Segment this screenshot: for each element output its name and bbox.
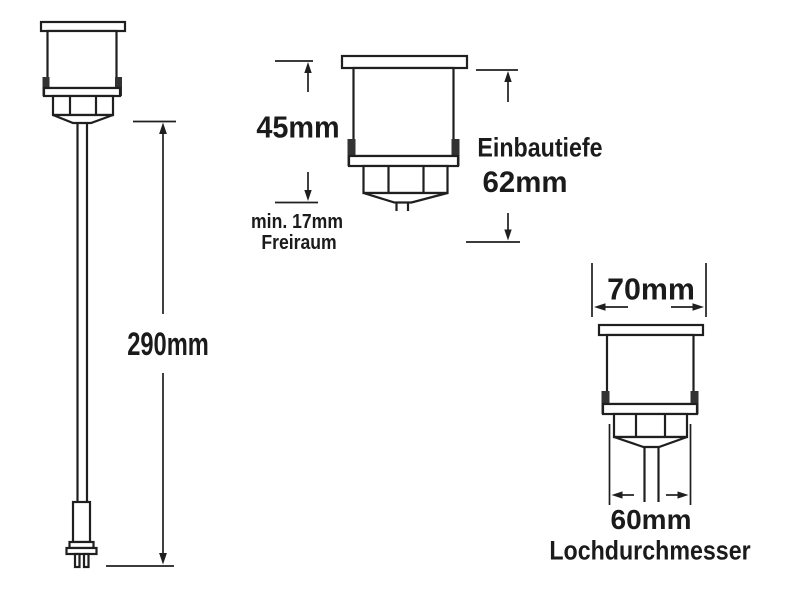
- depth-title-label: Einbautiefe: [477, 135, 602, 162]
- arrow-left-icon: [594, 303, 606, 310]
- middle-body: [354, 68, 454, 156]
- cable-length-label: 290mm: [127, 328, 209, 360]
- arrow-up-icon: [504, 71, 511, 82]
- left-rim: [44, 88, 120, 96]
- middle-hex-nut: [364, 166, 448, 193]
- middle-fixture-drawing: [342, 56, 467, 211]
- width-label: 70mm: [607, 274, 695, 305]
- left-flange: [41, 22, 125, 31]
- right-fixture-drawing: [599, 325, 703, 502]
- middle-flange: [342, 56, 467, 68]
- arrow-right-icon: [678, 491, 689, 498]
- plug-body: [73, 502, 90, 542]
- arrow-left-icon: [612, 491, 623, 498]
- hole-caption-label: Lochdurchmesser: [549, 538, 750, 565]
- left-fixture-drawing: [41, 22, 125, 567]
- arrow-down-icon: [504, 230, 511, 241]
- left-taper: [53, 115, 113, 123]
- left-body: [48, 31, 117, 88]
- clearance-label: Freiraum: [261, 233, 336, 253]
- left-hex-nut: [53, 96, 113, 115]
- clearance-label: min. 17mm: [251, 212, 343, 232]
- diagram-canvas: 290mm 45mm min. 17mm Freiraum Einbautief…: [0, 0, 800, 600]
- right-flange: [599, 325, 703, 335]
- plug-pin: [75, 554, 80, 567]
- right-body: [607, 335, 694, 404]
- right-hex-nut: [614, 414, 687, 437]
- middle-taper: [364, 193, 448, 203]
- arrow-up-icon: [304, 62, 311, 73]
- arrow-down-icon: [304, 190, 311, 201]
- hole-diameter-label: 60mm: [611, 506, 692, 534]
- height-label: 45mm: [256, 112, 339, 143]
- plug-base: [67, 548, 97, 554]
- depth-value-label: 62mm: [483, 168, 568, 198]
- arrow-up-icon: [159, 123, 167, 135]
- right-taper: [614, 437, 687, 447]
- middle-rim: [349, 156, 458, 166]
- right-rim: [603, 404, 697, 414]
- arrow-down-icon: [159, 553, 167, 565]
- plug-pin: [84, 554, 89, 567]
